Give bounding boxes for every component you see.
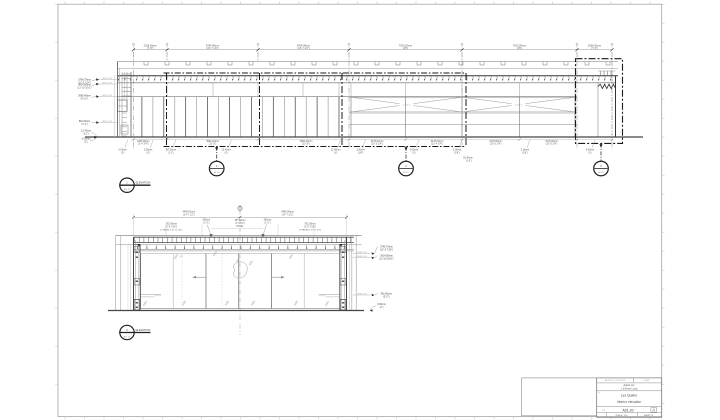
svg-text:(0'): (0')	[412, 153, 415, 155]
svg-text:(1/8"): (1/8")	[358, 153, 364, 155]
svg-text:(8'-10"): (8'-10")	[81, 98, 89, 101]
svg-text:(3'-2"): (3'-2")	[81, 123, 88, 126]
svg-text:(10'-5 1/4"): (10'-5 1/4")	[490, 143, 502, 146]
svg-text:(10'-5 1/4"): (10'-5 1/4")	[546, 143, 558, 146]
svg-text:(0"): (0")	[146, 153, 150, 155]
svg-text:Apple Inc: Apple Inc	[623, 383, 635, 387]
svg-text:C.R: C.R	[179, 256, 183, 258]
svg-text:12.40mm: 12.40mm	[222, 150, 232, 152]
svg-text:(15'-7 1/2"): (15'-7 1/2")	[297, 47, 309, 50]
svg-text:(2'-6 7/16"): (2'-6 7/16")	[304, 225, 316, 228]
svg-text:(15'-7 1/2"): (15'-7 1/2")	[206, 47, 218, 50]
svg-text:Les Quatre: Les Quatre	[621, 393, 637, 397]
svg-text:Interior elevation: Interior elevation	[617, 400, 642, 404]
svg-text:(14'-7 1/2"): (14'-7 1/2")	[183, 214, 195, 217]
svg-text:(7'-6"): (7'-6")	[591, 47, 598, 50]
svg-text:(2'-6 7/16"): (2'-6 7/16")	[165, 225, 177, 228]
svg-text:LEVEL 2.01: LEVEL 2.01	[102, 78, 112, 80]
svg-text:(1'-3"): (1'-3")	[168, 153, 174, 155]
svg-text:(1/8"): (1/8")	[522, 153, 528, 155]
svg-text:(14'-7 1/2"): (14'-7 1/2")	[282, 214, 294, 217]
svg-text:(12'-3 7/16"): (12'-3 7/16")	[380, 248, 393, 251]
svg-text:(0"): (0")	[84, 140, 88, 143]
svg-text:(10'-4 3/4"): (10'-4 3/4")	[431, 143, 443, 146]
svg-text:305mm: 305mm	[202, 220, 210, 222]
svg-text:(1'-0"): (1'-0")	[203, 222, 209, 224]
svg-text:(13'-0"): (13'-0")	[302, 143, 310, 146]
svg-text:(1/2"): (1/2")	[83, 132, 89, 135]
svg-text:LEVEL 2.01: LEVEL 2.01	[102, 95, 112, 97]
svg-text:12.40mm: 12.40mm	[331, 150, 341, 152]
svg-text:(3.6"): (3.6")	[466, 161, 472, 163]
svg-text:3.00mm: 3.00mm	[410, 150, 418, 152]
svg-text:(25'): (25')	[517, 47, 522, 50]
svg-text:3.00mm: 3.00mm	[356, 150, 364, 152]
svg-text:(7'-8"): (7'-8")	[147, 47, 154, 50]
svg-text:(1'-0"): (1'-0")	[264, 222, 270, 224]
svg-text:457.40mm: 457.40mm	[235, 220, 246, 222]
svg-text:(0'): (0')	[588, 153, 591, 155]
svg-text:(1/8"): (1/8")	[454, 153, 460, 155]
svg-text:CLIENT: CLIENT	[643, 380, 649, 382]
svg-text:A21.20: A21.20	[124, 188, 131, 191]
svg-text:A1.10: A1.10	[214, 171, 220, 174]
svg-text:(3'-4 3/4"): (3'-4 3/4")	[138, 143, 149, 146]
svg-text:305mm: 305mm	[264, 220, 272, 222]
svg-text:387.20mm: 387.20mm	[165, 150, 176, 152]
svg-text:(1'-6 1/2"): (1'-6 1/2")	[235, 223, 245, 225]
svg-text:(25'): (25')	[403, 47, 408, 50]
svg-text:0.00mm: 0.00mm	[586, 150, 594, 152]
svg-text:2.5x2.5: 2.5x2.5	[403, 104, 411, 106]
svg-text:(2 PANELS @ 15 1/4"): (2 PANELS @ 15 1/4")	[160, 229, 182, 232]
svg-text:(0"): (0")	[380, 306, 384, 309]
svg-text:LEVEL 2.01: LEVEL 2.01	[357, 256, 367, 258]
svg-text:(13'-0"): (13'-0")	[209, 143, 217, 146]
svg-text:SCALE: 1:50: SCALE: 1:50	[615, 414, 628, 417]
svg-text:LEVEL 2.01: LEVEL 2.01	[357, 252, 367, 254]
svg-text:3.18mm: 3.18mm	[521, 150, 529, 152]
svg-text:A21.20: A21.20	[124, 335, 131, 338]
svg-text:(2 PANELS @ 15 1/4"): (2 PANELS @ 15 1/4")	[299, 229, 321, 232]
svg-text:(10'-5 1/4"): (10'-5 1/4")	[371, 143, 383, 146]
svg-text:(0'): (0')	[121, 153, 124, 155]
svg-text:ELEVATION: ELEVATION	[136, 328, 151, 332]
svg-text:0.00mm: 0.00mm	[119, 150, 127, 152]
svg-text:ELEVATION: ELEVATION	[136, 181, 151, 185]
svg-text:(0'): (0')	[225, 153, 228, 155]
svg-text:1 Infinite Loop: 1 Infinite Loop	[621, 387, 638, 391]
svg-text:91.40mm: 91.40mm	[463, 158, 473, 160]
svg-text:LEVEL 2.01: LEVEL 2.01	[102, 121, 112, 123]
svg-text:(11'-10 5/16"): (11'-10 5/16")	[379, 257, 393, 260]
svg-text:SHEET 11: SHEET 11	[644, 415, 654, 417]
svg-text:A21.20: A21.20	[622, 408, 633, 412]
svg-text:ARCHITECT OF RECORD: ARCHITECT OF RECORD	[605, 379, 626, 382]
svg-text:A1.10: A1.10	[598, 171, 605, 174]
svg-text:LEVEL 2.01: LEVEL 2.01	[357, 293, 367, 295]
svg-text:3.18mm: 3.18mm	[453, 150, 461, 152]
svg-text:PANEL: PANEL	[236, 225, 244, 228]
svg-text:(11'-10 5/16"): (11'-10 5/16")	[77, 86, 91, 89]
svg-text:(3'-2"): (3'-2")	[383, 295, 390, 298]
svg-text:scale: scale	[602, 410, 606, 412]
svg-text:2.5x2.5: 2.5x2.5	[515, 104, 523, 106]
svg-text:LEVEL 2.01: LEVEL 2.01	[102, 82, 112, 84]
svg-text:A1.10: A1.10	[403, 171, 409, 174]
svg-text:(0'): (0')	[334, 153, 337, 155]
svg-text:0.00mm: 0.00mm	[144, 150, 152, 152]
